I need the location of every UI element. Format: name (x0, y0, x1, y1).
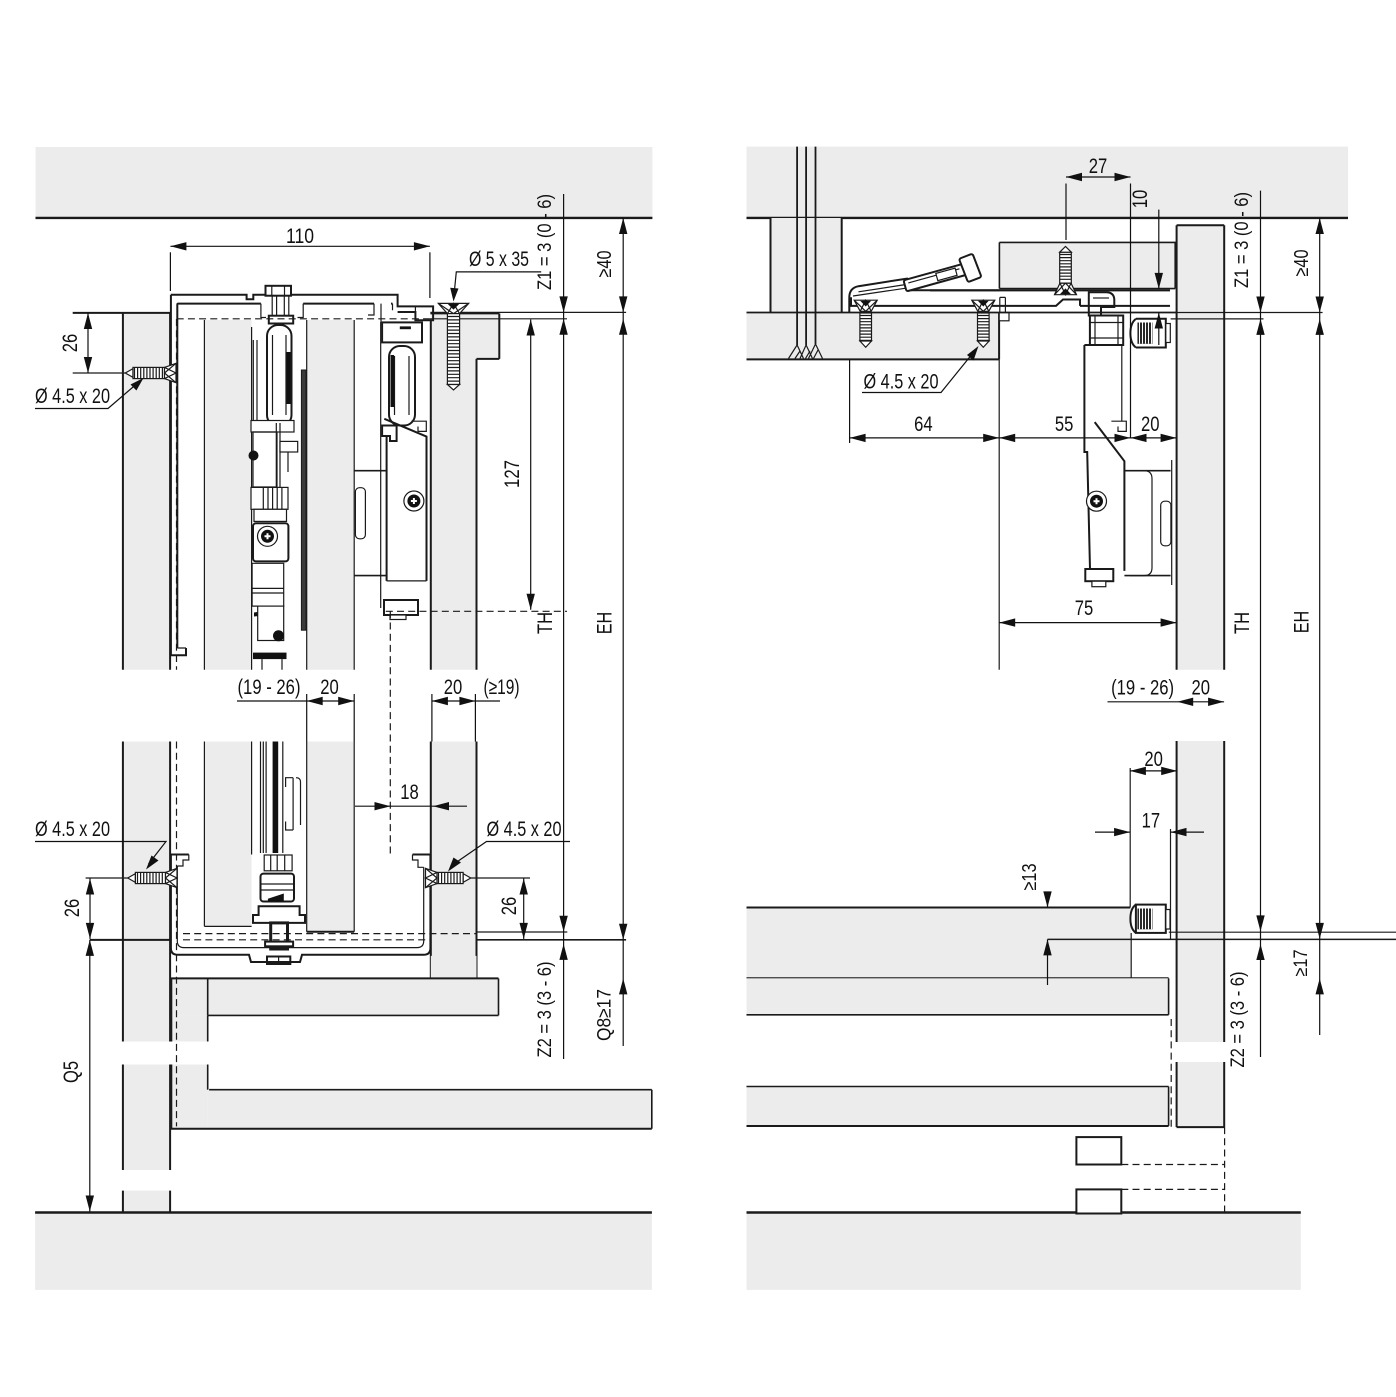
svg-text:≥40: ≥40 (1291, 250, 1313, 277)
svg-text:27: 27 (1089, 155, 1108, 178)
svg-text:Q8≥17: Q8≥17 (595, 989, 616, 1041)
svg-text:Ø 5 x 35: Ø 5 x 35 (469, 248, 529, 271)
svg-text:26: 26 (59, 334, 82, 353)
svg-text:64: 64 (914, 413, 933, 436)
svg-text:20: 20 (320, 676, 339, 699)
svg-text:20: 20 (1144, 748, 1163, 771)
svg-text:≥40: ≥40 (594, 251, 616, 278)
svg-text:(19 - 26): (19 - 26) (238, 676, 301, 699)
svg-text:Q5: Q5 (60, 1061, 83, 1083)
svg-text:18: 18 (400, 781, 419, 804)
svg-text:20: 20 (1141, 413, 1160, 436)
svg-text:20: 20 (1191, 677, 1210, 700)
svg-text:(19 - 26): (19 - 26) (1111, 677, 1174, 700)
svg-text:110: 110 (286, 225, 314, 248)
svg-text:Ø 4.5 x 20: Ø 4.5 x 20 (487, 818, 562, 841)
svg-text:Ø 4.5 x 20: Ø 4.5 x 20 (35, 385, 110, 408)
svg-text:EH: EH (594, 612, 617, 635)
svg-text:10: 10 (1129, 190, 1152, 209)
svg-text:TH: TH (534, 612, 557, 634)
svg-text:Ø 4.5 x 20: Ø 4.5 x 20 (35, 818, 110, 841)
svg-text:20: 20 (444, 676, 463, 699)
svg-text:75: 75 (1075, 597, 1094, 620)
svg-text:(≥19): (≥19) (484, 676, 520, 699)
svg-text:≥13: ≥13 (1019, 864, 1041, 891)
svg-text:Z2 = 3 (3 - 6): Z2 = 3 (3 - 6) (1228, 972, 1249, 1068)
svg-text:Ø 4.5 x 20: Ø 4.5 x 20 (864, 371, 939, 394)
svg-text:TH: TH (1231, 612, 1254, 634)
svg-text:127: 127 (501, 460, 524, 488)
svg-text:26: 26 (498, 897, 521, 916)
svg-text:≥17: ≥17 (1291, 950, 1312, 977)
svg-text:Z1 = 3 (0 - 6): Z1 = 3 (0 - 6) (535, 194, 556, 290)
svg-text:Z1 = 3 (0 - 6): Z1 = 3 (0 - 6) (1232, 192, 1253, 288)
svg-text:Z2 = 3 (3 - 6): Z2 = 3 (3 - 6) (535, 962, 556, 1058)
svg-text:EH: EH (1291, 611, 1314, 634)
svg-text:55: 55 (1055, 413, 1074, 436)
svg-text:26: 26 (61, 899, 84, 918)
svg-text:17: 17 (1142, 810, 1161, 833)
